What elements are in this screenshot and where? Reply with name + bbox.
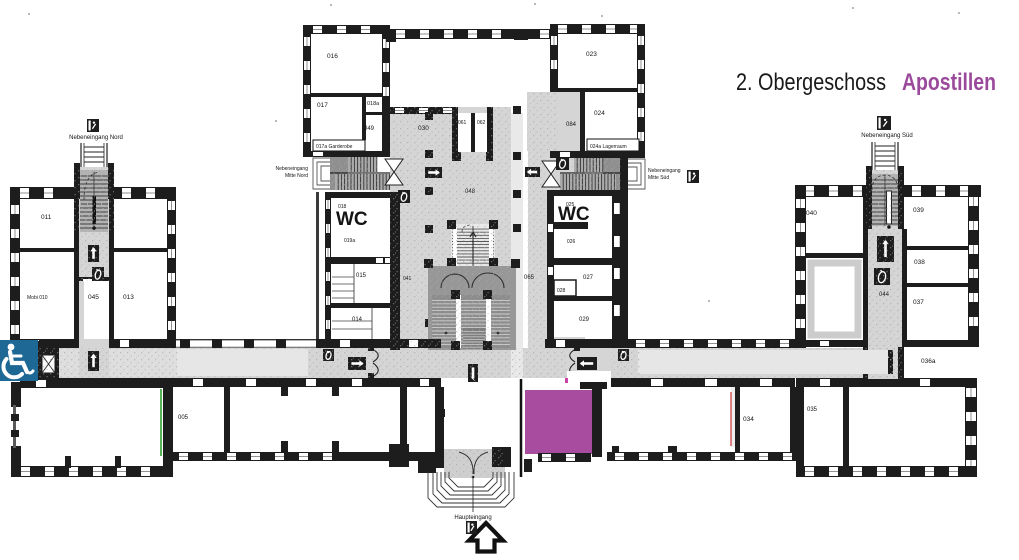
svg-text:Nebeneingang Nord: Nebeneingang Nord bbox=[69, 135, 123, 141]
svg-text:040: 040 bbox=[806, 210, 817, 217]
svg-text:027: 027 bbox=[583, 275, 594, 281]
svg-text:Nebeneingang: Nebeneingang bbox=[275, 166, 308, 172]
svg-text:Apostillen: Apostillen bbox=[902, 69, 996, 96]
svg-text:039: 039 bbox=[913, 207, 924, 214]
svg-text:Mitte Süd: Mitte Süd bbox=[648, 175, 669, 181]
svg-text:037: 037 bbox=[913, 299, 924, 306]
svg-text:036a: 036a bbox=[921, 358, 936, 365]
svg-text:Mobi 010: Mobi 010 bbox=[27, 295, 48, 301]
svg-text:016: 016 bbox=[327, 53, 338, 60]
svg-text:024: 024 bbox=[594, 110, 605, 117]
svg-text:017: 017 bbox=[317, 102, 328, 109]
svg-text:038: 038 bbox=[914, 259, 925, 266]
svg-text:013: 013 bbox=[123, 294, 134, 301]
svg-text:045: 045 bbox=[88, 294, 99, 301]
svg-text:084: 084 bbox=[566, 122, 577, 128]
svg-text:Nebeneingang: Nebeneingang bbox=[648, 168, 681, 174]
svg-text:WC: WC bbox=[558, 204, 590, 225]
svg-text:014: 014 bbox=[352, 317, 363, 323]
svg-text:Nebeneingang Süd: Nebeneingang Süd bbox=[861, 133, 912, 139]
svg-text:062: 062 bbox=[477, 120, 486, 126]
svg-text:011: 011 bbox=[41, 214, 52, 221]
svg-text:005: 005 bbox=[178, 415, 189, 421]
svg-text:019a: 019a bbox=[344, 238, 355, 244]
svg-text:015: 015 bbox=[356, 273, 367, 279]
svg-text:049: 049 bbox=[364, 126, 375, 132]
svg-text:Mitte Nord: Mitte Nord bbox=[285, 173, 308, 179]
svg-text:029: 029 bbox=[579, 317, 590, 323]
svg-text:034: 034 bbox=[743, 416, 754, 423]
svg-text:028: 028 bbox=[557, 288, 566, 294]
svg-text:024a Lagerraum: 024a Lagerraum bbox=[590, 144, 627, 150]
svg-text:018a: 018a bbox=[367, 101, 380, 107]
svg-text:026: 026 bbox=[567, 239, 576, 245]
svg-text:WC: WC bbox=[336, 209, 368, 230]
svg-text:035: 035 bbox=[807, 407, 818, 413]
svg-text:2. Obergeschoss: 2. Obergeschoss bbox=[736, 69, 886, 96]
svg-text:017a Garderobe: 017a Garderobe bbox=[316, 144, 353, 150]
svg-text:061: 061 bbox=[458, 120, 467, 126]
svg-text:023: 023 bbox=[586, 51, 597, 58]
